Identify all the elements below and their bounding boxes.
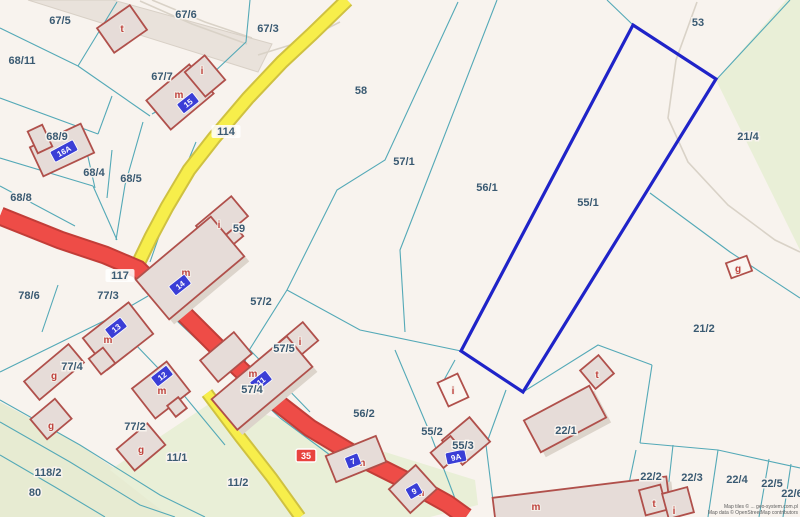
parcel-label-11-2: 11/2: [228, 477, 249, 489]
parcel-label-78-6: 78/6: [18, 290, 39, 302]
parcel-label-77-4: 77/4: [61, 361, 83, 373]
map-canvas[interactable]: timmimmmgggimtigmmtim1516A14131211799A11…: [0, 0, 800, 517]
cadastral-map-svg[interactable]: timmimmmgggimtigmmtim1516A14131211799A11…: [0, 0, 800, 517]
parcel-label-22-2: 22/2: [640, 471, 661, 483]
parcel-label-77-2: 77/2: [124, 421, 145, 433]
parcel-label-77-3: 77/3: [97, 290, 118, 302]
building-letter-g: g: [138, 445, 144, 456]
parcel-label-118-2: 118/2: [35, 467, 62, 479]
parcel-label-68-5: 68/5: [120, 173, 141, 185]
building-letter-g: g: [735, 264, 741, 275]
parcel-label-53: 53: [692, 17, 704, 29]
building-letter-m: m: [158, 386, 167, 397]
parcel-label-55-3: 55/3: [452, 440, 473, 452]
parcel-label-55-1: 55/1: [577, 197, 598, 209]
parcel-label-80: 80: [29, 487, 41, 499]
building-letter-m: m: [532, 502, 541, 513]
parcel-label-11-1: 11/1: [167, 452, 188, 464]
parcel-label-58: 58: [355, 85, 367, 97]
parcel-label-22-1: 22/1: [555, 425, 576, 437]
parcel-label-22-3: 22/3: [681, 472, 702, 484]
parcel-label-68-9: 68/9: [46, 131, 67, 143]
parcel-label-22-5: 22/5: [761, 478, 782, 490]
parcel-label-21-2: 21/2: [693, 323, 714, 335]
building-letter-g: g: [48, 421, 54, 432]
road-label-114: 114: [217, 126, 236, 138]
building-letter-m: m: [175, 90, 184, 101]
parcel-label-67-7: 67/7: [151, 71, 172, 83]
parcel-label-59: 59: [233, 223, 245, 235]
parcel-label-21-4: 21/4: [737, 131, 759, 143]
parcel-label-67-5: 67/5: [49, 15, 70, 27]
parcel-label-56-1: 56/1: [476, 182, 497, 194]
parcel-label-67-3: 67/3: [257, 23, 278, 35]
building-letter-i: i: [673, 506, 676, 517]
building-letter-i: i: [218, 220, 221, 231]
building-letter-i: i: [201, 66, 204, 77]
building-letter-g: g: [51, 371, 57, 382]
parcel-label-57-4: 57/4: [241, 384, 263, 396]
parcel-label-55-2: 55/2: [421, 426, 442, 438]
building-letter-i: i: [452, 386, 455, 397]
parcel-label-68-4: 68/4: [83, 167, 105, 179]
parcel-label-68-8: 68/8: [10, 192, 31, 204]
parcel-label-57-2: 57/2: [250, 296, 271, 308]
building-letter-i: i: [299, 337, 302, 348]
parcel-label-68-11: 68/11: [9, 55, 36, 67]
parcel-label-22-4: 22/4: [726, 474, 748, 486]
parcel-label-67-6: 67/6: [175, 9, 196, 21]
route-shield-label: 35: [301, 451, 311, 461]
road-label-117: 117: [111, 270, 129, 282]
parcel-label-56-2: 56/2: [353, 408, 374, 420]
parcel-label-57-1: 57/1: [393, 156, 414, 168]
parcel-label-22-6: 22/6: [781, 488, 800, 500]
parcel-label-57-5: 57/5: [273, 343, 294, 355]
